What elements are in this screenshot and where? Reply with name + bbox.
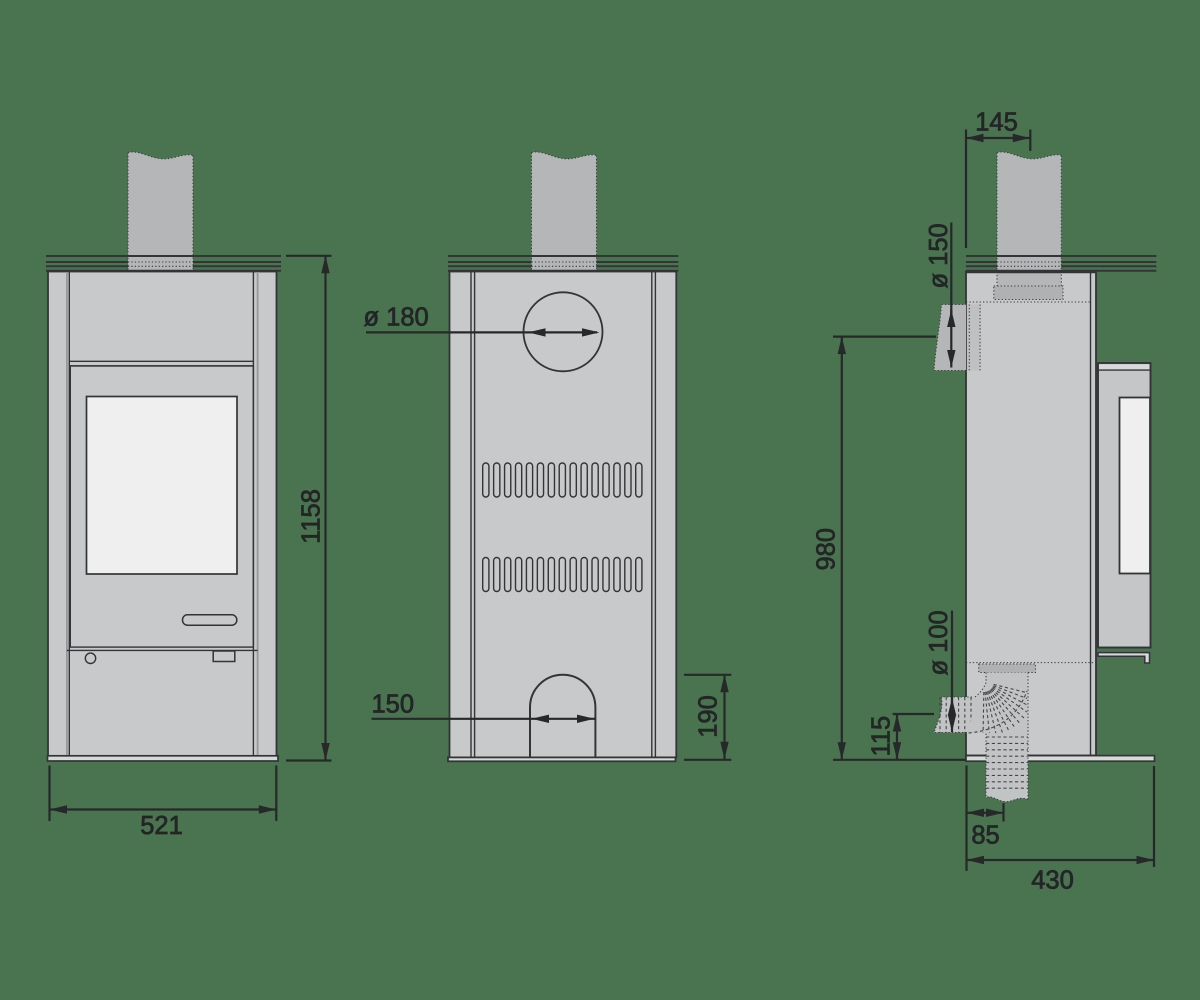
svg-text:ø 150: ø 150	[925, 223, 953, 288]
svg-text:85: 85	[971, 822, 999, 850]
svg-text:ø 100: ø 100	[925, 610, 953, 675]
svg-text:150: 150	[372, 691, 415, 719]
svg-text:115: 115	[868, 716, 896, 757]
svg-text:430: 430	[1031, 867, 1074, 895]
svg-text:1158: 1158	[298, 489, 326, 544]
svg-text:521: 521	[140, 812, 183, 840]
svg-text:ø 180: ø 180	[364, 304, 429, 332]
svg-text:145: 145	[975, 109, 1018, 137]
svg-text:190: 190	[695, 695, 723, 738]
svg-text:980: 980	[813, 528, 841, 571]
